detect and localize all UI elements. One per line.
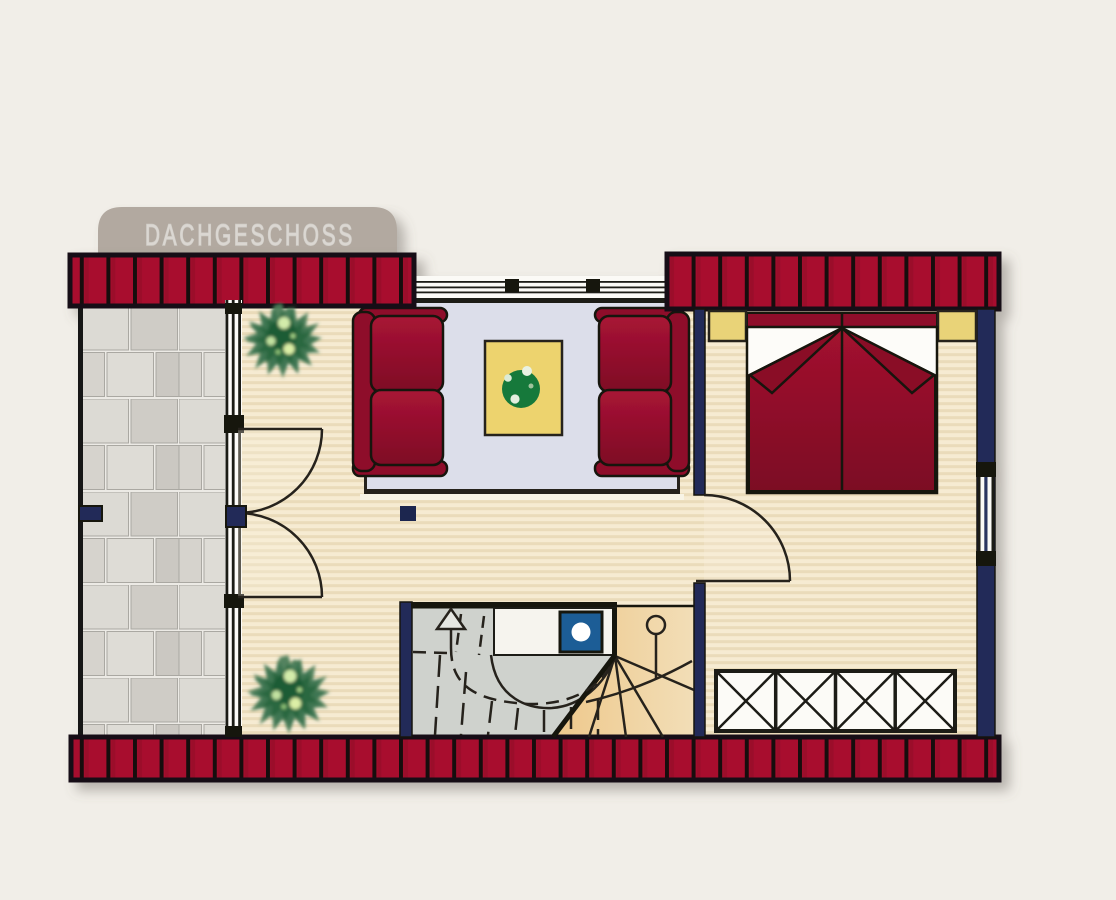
svg-text:DACHGESCHOSS: DACHGESCHOSS — [145, 219, 355, 252]
